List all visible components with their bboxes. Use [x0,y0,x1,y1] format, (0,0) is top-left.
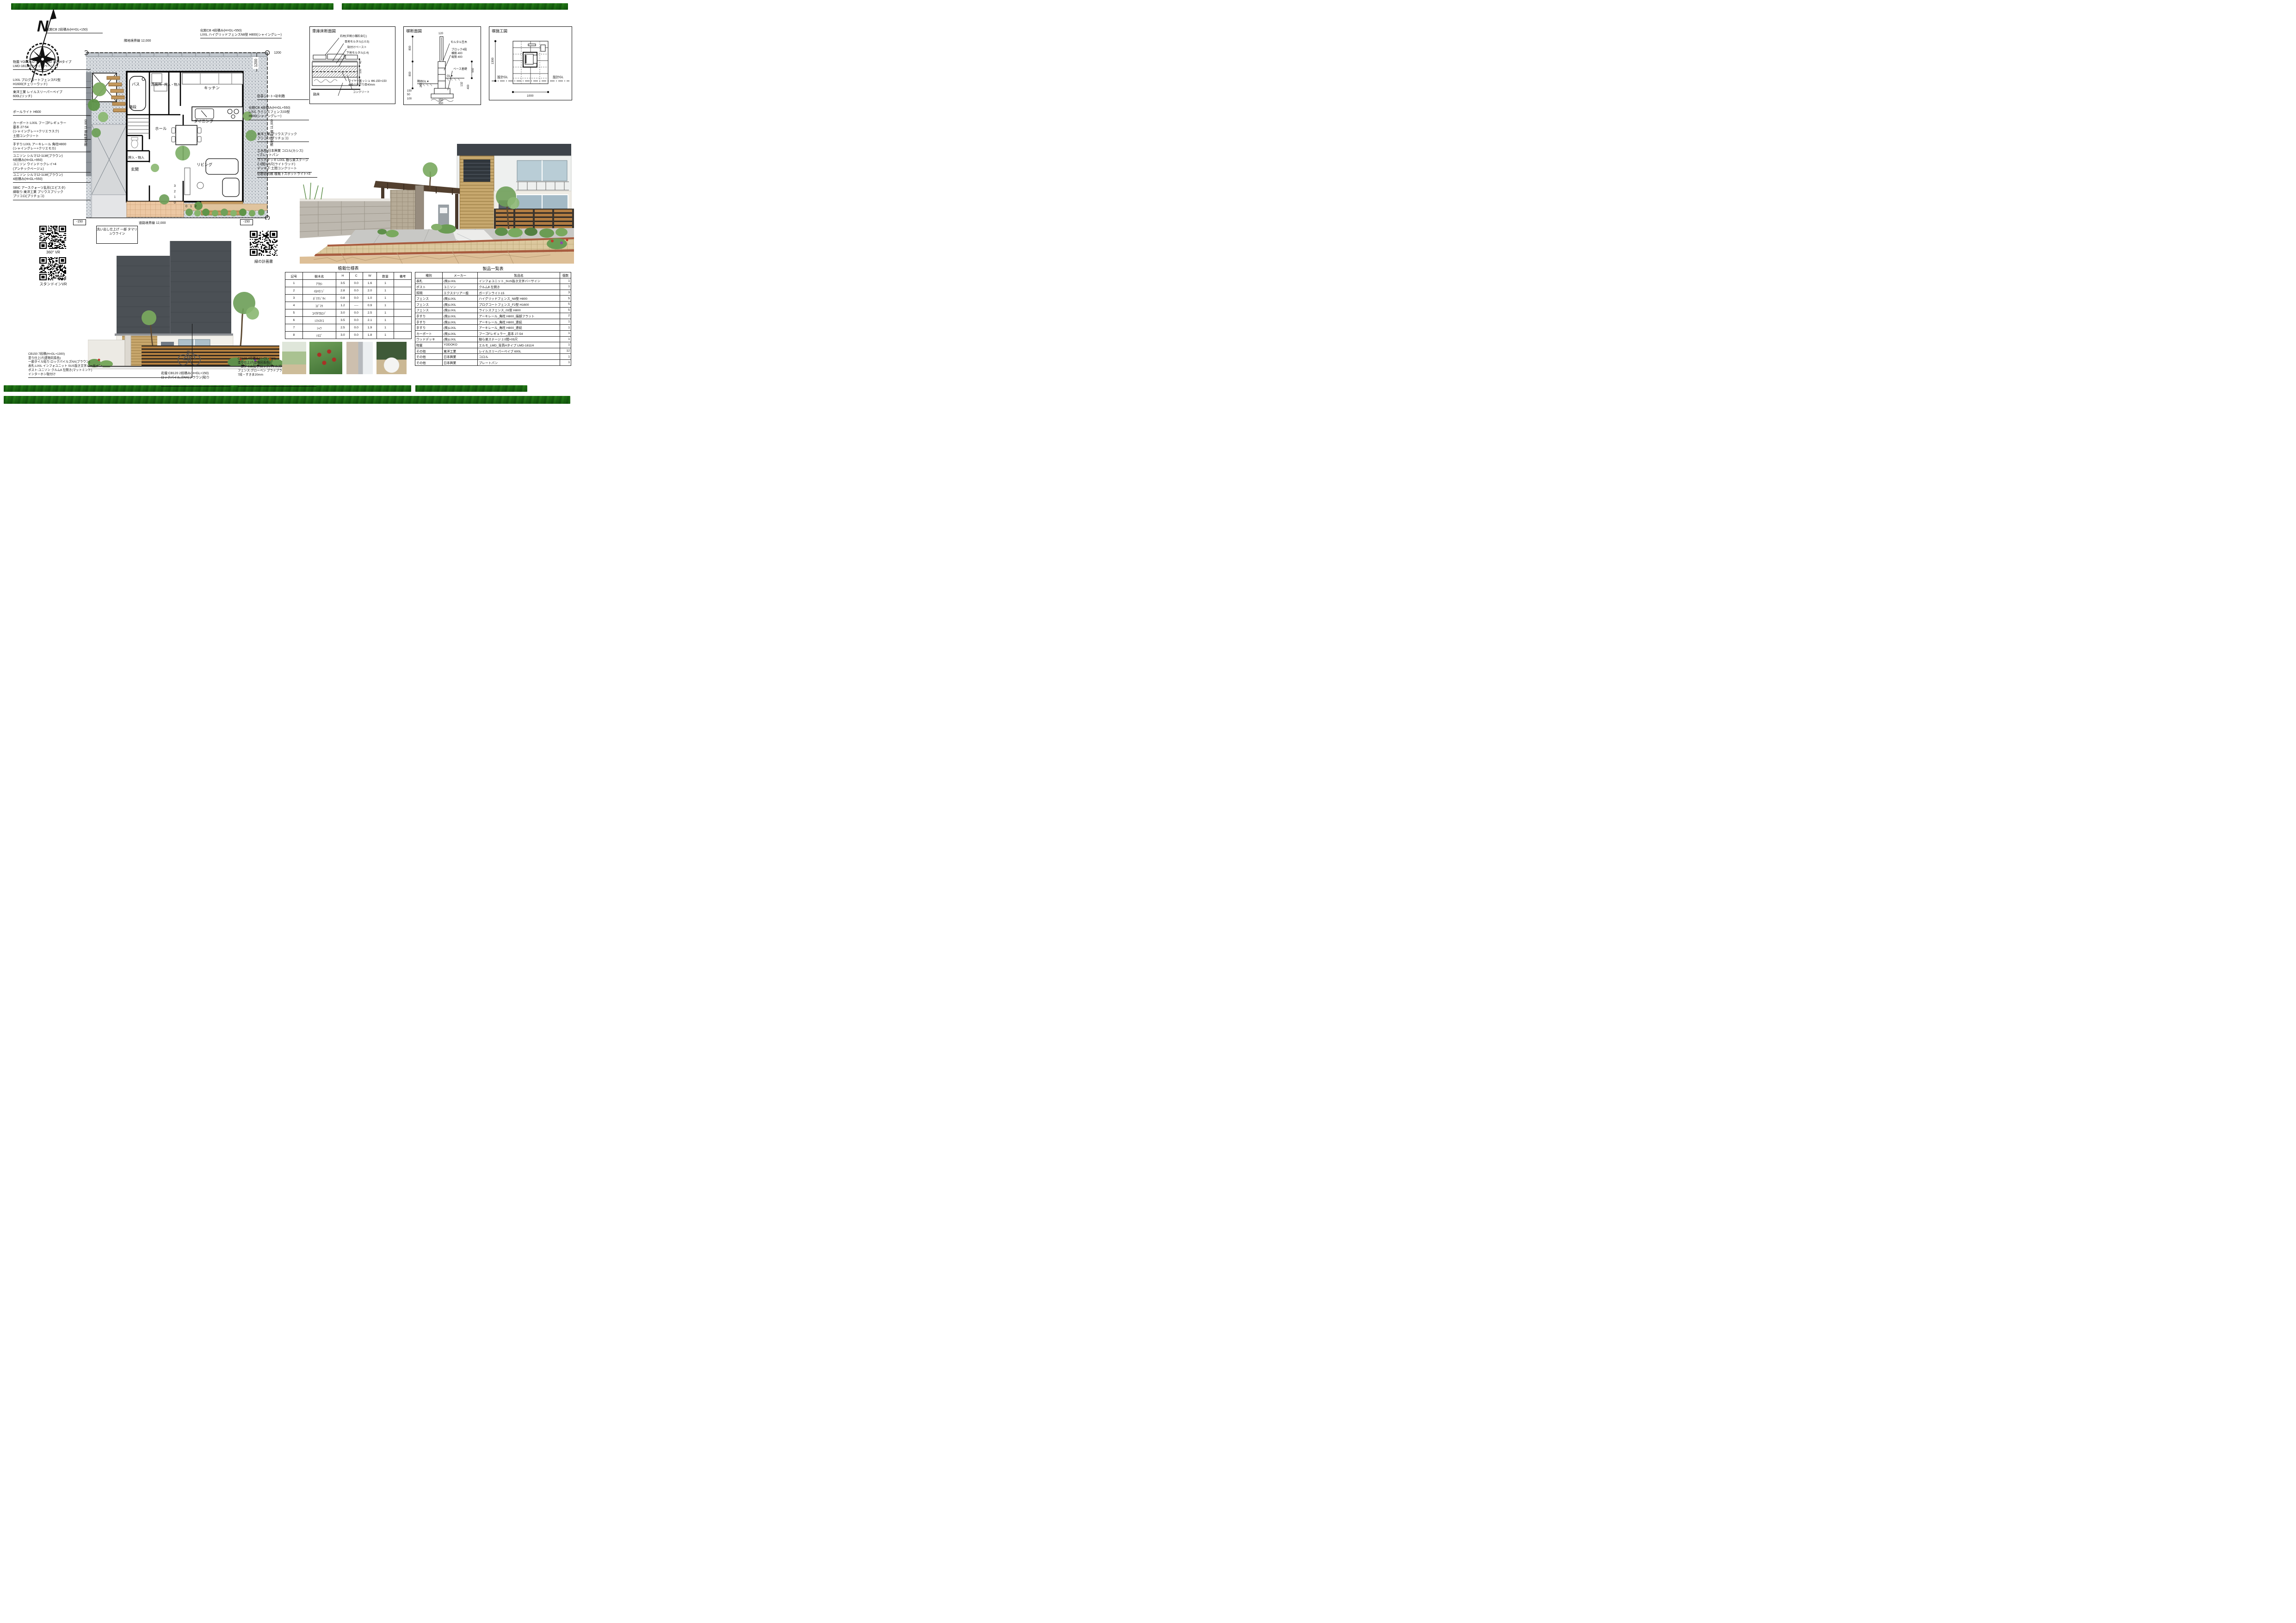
svg-text:350: 350 [438,99,444,102]
grass-stripe-bottom-2 [4,396,570,404]
leader-flowerbed [161,386,230,387]
callout-railsleeper: 東洋工業 レイルスリーパーペイブ 600L(リッチ) [13,90,91,100]
table-row: フェンス(株)LIXILハイグリッドフェンス_N8型 H8005 [415,296,571,302]
photo-garden [282,342,306,374]
table-row: フェンス(株)LIXILライシスフェンス_03型 H8005 [415,307,571,313]
svg-text:1300: 1300 [491,57,494,64]
dim-right-boundary: 隣地境界線 11,000 [270,110,274,156]
leader-cb120 [238,386,316,387]
svg-text:800: 800 [409,71,412,76]
leader-cb150-v [192,324,192,378]
svg-text:石材(半割小舗石含む): 石材(半割小舗石含む) [340,34,367,38]
wall-section: 塀断面図 モルタル笠木 ブロック4段横筋 400縦筋 400 ベース基礎 GL▼… [403,26,481,105]
svg-text:2: 2 [174,190,176,193]
drawing-sheet: { "compass": {"n": "N"}, "plan": { "labe… [0,0,574,406]
dim-left-boundary: 隣地境界線 11,000 [84,110,88,156]
table-row: ポストユニソンクルムⅡ 左開き1 [415,284,571,290]
callout-polelight: ポールライト H600 [13,110,91,116]
callout-sbic: SBIC アースクォーツ乱形(エピスタ) 縁取り:東洋工業 プリウスブリック プ… [13,186,91,200]
table-row: 手すり(株)LIXILアーキレール_角柱 H800_連続1 [415,325,571,331]
svg-text:550: 550 [472,68,475,73]
callout-cb150: CB150 7段積(H=GL+1300) 塗り仕上げ(建物同系色) 一部タイル貼… [28,352,130,376]
callout-cb2dan: 化粧CB 2段積み(H=GL+150) [46,28,103,33]
wall-section-title: 塀断面図 [406,29,422,33]
table-row: 4ｺﾃﾞﾏﾘ1.2----0.91 [285,302,412,309]
planting-table-title: 植栽仕様表 [285,265,412,271]
svg-text:100: 100 [359,68,362,74]
table-row: 3ｶﾞｸｱｼﾞｻｲ0.80.01.01 [285,295,412,302]
table-row: 手すり(株)LIXILアーキレール_角柱 H800_端部フラット2 [415,313,571,319]
site-plan: 1200 バス 洗面所 押入・物入 キッチン 階段 ホール ダイニング 押入・物… [85,47,270,220]
svg-text:貼付けペースト: 貼付けペースト [347,45,367,49]
svg-text:0: 0 [185,205,187,208]
table-row: ウッドデッキ(株)LIXIL樹ら楽ステージ 2.0間×05尺1 [415,336,571,342]
svg-text:隣地GL▼: 隣地GL▼ [417,80,429,83]
table-row: フェンス(株)LIXILプログコートフェンス_F2型 H16005 [415,301,571,307]
callout-progcourt-fence: LIXIL プログコートフェンスF2型 H1600(チェリーウッド) [13,78,91,88]
table-row: 7ｼｬﾗ2.50.01.91 [285,324,412,332]
photo-post-wall [346,342,373,374]
svg-text:設計GL: 設計GL [553,75,563,79]
photo-faucet-pot [376,342,407,374]
svg-text:450: 450 [438,102,444,105]
svg-text:120: 120 [438,32,444,35]
planting-table: 記号樹木名HCW数量備考1ｱﾗｶｼ3.50.01.612ｲﾛﾊﾓﾐｼﾞ2.80.… [285,272,412,339]
callout-carport: カーポート:LIXIL フーゴFレギュラー 基本 27-54 (シャイングレー+… [13,121,91,140]
dim-top-boundary: 隣地境界線 12,000 [124,38,151,43]
svg-text:150: 150 [407,90,412,93]
svg-text:GL▼: GL▼ [447,75,453,78]
room-kitchen: キッチン [204,86,220,90]
room-bath: バス [132,82,140,86]
svg-text:132: 132 [461,81,463,86]
callout-handrail: 手すり:LIXIL アーキレール 角柱H800 (シャイングレー+クリエモカ) [13,142,91,152]
table-row: 8ｿﾖｺﾞ3.00.01.81 [285,332,412,339]
callout-flowerbed: 花壇:CB120 2段積み(H=GL+150) ロックパイルズNX(ブラウン)貼… [161,371,231,380]
table-row: 表札(株)LIXILインフォユニット_SUS抜き文字バーサイン1 [415,278,571,284]
dim-minus150-right: -150 [240,219,253,225]
qr-360vr-label: 360° VR [32,250,74,254]
table-row: 1ｱﾗｶｼ3.50.01.61 [285,280,412,287]
wall-construction-drawing: 塀施工図 設計GL 設計GL 1300 1000 [489,26,572,100]
svg-text:目地モルタル(1:0.5): 目地モルタル(1:0.5) [345,40,369,43]
garage-section-title: 車庫床断面図 [312,29,336,33]
perspective-rendering [300,112,574,264]
wall-elev-title: 塀施工図 [492,29,507,33]
svg-text:50: 50 [407,93,410,96]
room-closet1: 押入・物入 [164,82,180,86]
svg-text:2: 2 [195,205,197,208]
callout-highgrid-fence: 化粧CB 4段積み(H=GL+550) LIXIL ハイグリッドフェンスN8型 … [200,29,282,38]
svg-text:1000: 1000 [527,94,534,98]
svg-text:400: 400 [467,84,470,89]
dim-minus150-left: -150 [73,219,86,225]
svg-text:3: 3 [174,185,176,188]
room-closet2: 押入・物入 [128,155,144,160]
compass-icon: N [19,7,67,84]
svg-text:100: 100 [407,98,412,100]
dim-road-boundary: 道路境界線 12,000 [139,221,166,225]
room-stairs: 階段 [129,105,136,109]
plan-dim-1200-v: 1200 [254,59,258,67]
svg-text:0: 0 [174,201,176,204]
table-row: その他日本興業プレートパン1 [415,359,571,365]
grass-stripe-bottom-1b [415,385,527,392]
table-row: その他日本興業コロル1 [415,354,571,360]
table-row: 照明エクステリア一般ガーデンライト153 [415,290,571,296]
wall-block-label: ブロック4段 [451,48,467,51]
svg-text:282: 282 [420,82,423,87]
dim-1200-box: 1200 [270,51,285,56]
svg-text:路床: 路床 [313,92,320,96]
svg-text:100: 100 [359,79,362,84]
products-table-title: 製品一覧表 [415,265,571,272]
photo-soyogo-berries [309,342,342,374]
svg-text:コンクリート: コンクリート [353,91,370,94]
room-dining: ダイニング [194,119,214,123]
svg-text:設計GL: 設計GL [497,75,508,79]
qr-standin-label: スタンドインVR [28,282,79,287]
room-living: リビング [197,162,213,167]
svg-text:下地モルタル(1:4): 下地モルタル(1:4) [346,51,369,55]
room-entrance: 玄関 [131,167,139,172]
callout-unison-4dan: ユニソン シルマ12-1LW(ブラウン) 4段積み(H=GL+550) [13,173,91,183]
garage-floor-section: 車庫床断面図 石材(半割小舗石含む) 目地モルタル(1:0.5) 貼付けペースト… [309,26,395,104]
svg-text:40: 40 [359,61,362,64]
svg-text:800: 800 [409,45,412,50]
svg-text:1: 1 [174,196,176,199]
svg-text:モルタル笠木: モルタル笠木 [451,40,467,44]
table-row: 物置YODOKOエルモ_LMD_背高Hタイプ LMD-1811H1 [415,342,571,348]
grass-stripe-top-right [342,3,568,10]
qr-360vr [39,226,66,249]
table-row: 5ｺﾊｳﾁﾜｶｴﾃﾞ3.00.02.51 [285,309,412,317]
garage-wiremesh-line1: ワイヤーメッシュ Φ6-150×150 [348,80,387,83]
room-lavatory: 洗面所 [151,82,162,86]
svg-text:ベース基礎: ベース基礎 [453,67,467,71]
callout-unison-6dan: ユニソン シルマ12-1LW(ブラウン) 6段積み(H=GL+950) ユニソン… [13,154,91,173]
table-row: 6ｼﾏﾄﾈﾘｺ3.50.02.11 [285,317,412,324]
callout-shed: 物置:YODOKO エルモLMD 背高Hタイプ LMD-1811H(カシミヤベー… [13,60,91,70]
products-table: 種別メーカー製品名個数表札(株)LIXILインフォユニット_SUS抜き文字バーサ… [415,272,571,366]
svg-text:1: 1 [190,205,192,208]
callout-weedsheet: 防草シート+砂利敷 [257,94,309,100]
table-row: 2ｲﾛﾊﾓﾐｼﾞ2.80.02.01 [285,287,412,295]
table-row: その他東洋工業レイルスリーパーペイブ 600L12 [415,348,571,354]
qr-standin [39,257,66,280]
room-hall: ホール [155,126,167,131]
table-row: カーポート(株)LIXILフーゴFレギュラー_基本 27-541 [415,330,571,336]
table-row: 手すり(株)LIXILアーキレール_角柱 H800_連続1 [415,319,571,325]
